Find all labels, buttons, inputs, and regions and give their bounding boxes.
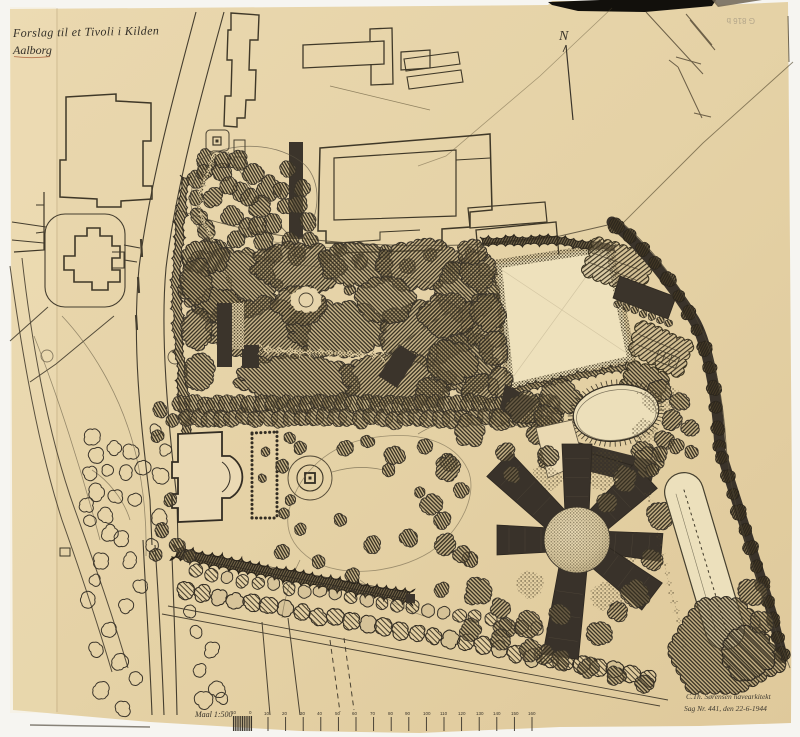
svg-text:50: 50 [335, 711, 341, 716]
svg-text:G 816 b: G 816 b [726, 16, 755, 25]
svg-text:40: 40 [317, 711, 323, 716]
svg-text:130: 130 [476, 711, 484, 716]
svg-text:Forslag til et Tivoli i Kilden: Forslag til et Tivoli i Kilden [12, 23, 160, 40]
svg-text:140: 140 [493, 711, 501, 716]
svg-text:70: 70 [370, 711, 376, 716]
svg-text:80: 80 [388, 711, 394, 716]
svg-text:10: 10 [264, 711, 270, 716]
svg-text:30: 30 [300, 711, 306, 716]
svg-text:Sag Nr. 441, den 22-6-1944: Sag Nr. 441, den 22-6-1944 [684, 704, 767, 713]
svg-text:C.Th. Sørensen havearkitekt: C.Th. Sørensen havearkitekt [686, 692, 772, 701]
svg-text:10: 10 [231, 710, 237, 715]
svg-text:100: 100 [423, 711, 431, 716]
svg-text:110: 110 [440, 711, 448, 716]
svg-text:Maal 1:500: Maal 1:500 [194, 710, 233, 719]
svg-text:150: 150 [511, 711, 519, 716]
svg-text:N: N [558, 29, 569, 44]
svg-text:90: 90 [405, 711, 411, 716]
svg-text:160: 160 [528, 711, 536, 716]
svg-text:20: 20 [282, 711, 288, 716]
svg-text:120: 120 [458, 711, 466, 716]
svg-text:60: 60 [352, 711, 358, 716]
svg-text:Aalborg: Aalborg [12, 43, 52, 57]
